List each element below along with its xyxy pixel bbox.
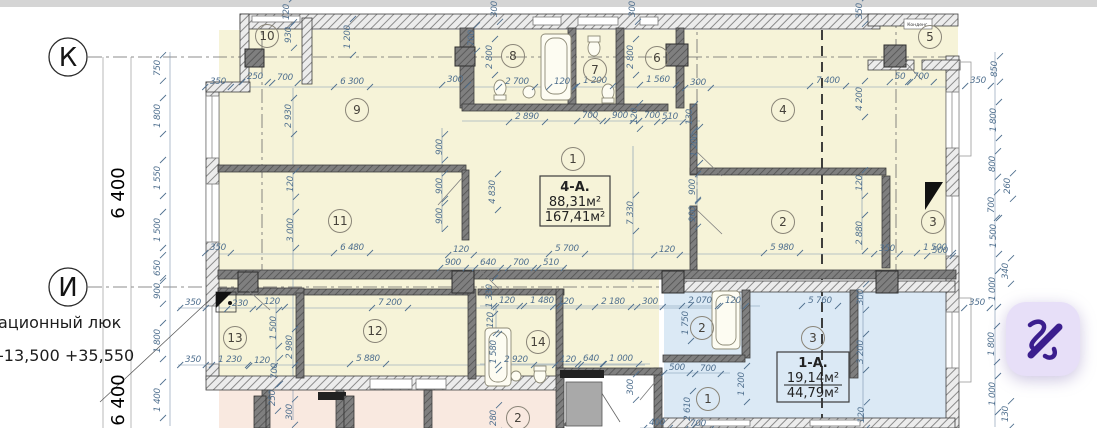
axis-span-dimension: 6 400 xyxy=(108,374,129,426)
dimension-label: 2 880 xyxy=(855,220,865,244)
dimension-label: 350 xyxy=(185,355,202,365)
dimension-label: 120 xyxy=(857,406,867,423)
dimension-label: 700 xyxy=(913,72,930,82)
svg-text:88,31м²: 88,31м² xyxy=(549,195,601,210)
dimension-label: 130 xyxy=(685,108,695,125)
dimension-label: 750 xyxy=(153,59,163,76)
dimension-label: 700 xyxy=(987,196,997,213)
svg-text:167,41м²: 167,41м² xyxy=(545,210,606,225)
annotate-button[interactable] xyxy=(1006,302,1080,376)
door-leaf xyxy=(560,370,604,378)
dimension-label: 2 890 xyxy=(515,112,539,122)
dimension-label: 2 920 xyxy=(504,355,528,365)
axis-bubble-K: К xyxy=(49,38,87,76)
dimension-label: 640 xyxy=(583,354,600,364)
dimension-label: 700 xyxy=(277,73,294,83)
dimension-label: 1 500 xyxy=(989,223,999,247)
dimension-label: 120 xyxy=(282,3,292,20)
dimension-label: 6 480 xyxy=(340,243,364,253)
dimension-label: 2 800 xyxy=(626,44,636,68)
dimension-label: 2 980 xyxy=(285,334,295,358)
dimension-label: 1 800 xyxy=(989,107,999,131)
dimension-label: 1 560 xyxy=(646,75,670,85)
dimension-label: 340 xyxy=(1001,262,1011,279)
condensate-unit-label: Конденс. xyxy=(904,19,932,29)
dimension-label: 280 xyxy=(489,409,499,426)
door-leaf xyxy=(318,392,346,400)
elevation-note: -13,500 +35,550 xyxy=(0,346,134,365)
dimension-label: 350 xyxy=(969,298,986,308)
dimension-label: 900 xyxy=(445,258,462,268)
dimension-label: 2 700 xyxy=(505,77,529,87)
room-number: 4 xyxy=(779,103,787,117)
sink xyxy=(523,86,535,98)
dimension-label: 640 xyxy=(480,258,497,268)
dimension-label: 300 xyxy=(628,0,638,17)
axis-label-K: К xyxy=(59,43,77,73)
dimension-label: 1 200 xyxy=(737,371,747,395)
dimension-label: 900 xyxy=(688,205,698,222)
dimension-label: 700 xyxy=(700,364,717,374)
room-number: 14 xyxy=(530,335,545,349)
dimension-label: 850 xyxy=(990,60,1000,77)
room-number: 10 xyxy=(259,29,274,43)
dimension-label: 5 700 xyxy=(555,244,579,254)
dimension-label: 120 xyxy=(286,175,296,192)
dimension-label: 300 xyxy=(447,75,464,85)
dimension-label: 130 xyxy=(1001,405,1011,422)
dimension-label: 300 xyxy=(626,378,636,395)
dimension-label: 250 xyxy=(247,72,264,82)
top-edge-strip xyxy=(0,0,1097,7)
dimension-label: 650 xyxy=(153,259,163,276)
dimension-label: 1 330 xyxy=(485,283,495,307)
room-number: 13 xyxy=(227,331,242,345)
axis-label-I: И xyxy=(58,273,77,303)
dimension-label: 1 750 xyxy=(681,310,691,334)
dimension-label: 6 300 xyxy=(340,77,364,87)
dimension-label: 3 200 xyxy=(856,339,866,363)
dimension-label: 120 xyxy=(453,245,470,255)
dimension-label: 120 xyxy=(855,174,865,191)
room-number: 9 xyxy=(353,103,361,117)
dimension-label: 350 xyxy=(855,2,865,19)
dimension-label: 250 xyxy=(268,389,278,406)
dimension-label: 350 xyxy=(879,244,896,254)
floor-plan-screenshot: Конденс. К И 6 400 6 400 ационный люк -1… xyxy=(0,0,1097,428)
dimension-label: 350 xyxy=(185,298,202,308)
dimension-label: 1 000 xyxy=(988,381,998,405)
dimension-label: 3 000 xyxy=(286,217,296,241)
svg-text:19,14м²: 19,14м² xyxy=(787,371,839,386)
room-number: 2 xyxy=(779,215,787,229)
dimension-label: 700 xyxy=(690,419,707,428)
dimension-label: 300 xyxy=(490,0,500,17)
dimension-label: 2 930 xyxy=(284,103,294,127)
dimension-label: 1 800 xyxy=(153,103,163,127)
dimension-label: 1 500 xyxy=(153,217,163,241)
dimension-label: 5 980 xyxy=(770,243,794,253)
room-number: 1 xyxy=(569,152,577,166)
floor-plan-canvas: Конденс. К И 6 400 6 400 ационный люк -1… xyxy=(0,0,1097,428)
room-number: 12 xyxy=(367,324,382,338)
dimension-label: 230 xyxy=(232,299,249,309)
dimension-label: 1 400 xyxy=(153,387,163,411)
dimension-label: 700 xyxy=(467,29,477,46)
dimension-label: 300 xyxy=(856,288,866,305)
dimension-label: 120 xyxy=(558,297,575,307)
elevator-shaft xyxy=(566,382,602,426)
balcony-slab xyxy=(959,298,971,382)
dimension-label: 700 xyxy=(644,111,661,121)
dimension-label: 900 xyxy=(612,111,629,121)
svg-text:Конденс.: Конденс. xyxy=(907,22,929,28)
dimension-label: 300 xyxy=(642,297,659,307)
dimension-label: 700 xyxy=(582,111,599,121)
dimension-label: 1 200 xyxy=(690,132,700,156)
dimension-label: 7 400 xyxy=(816,76,840,86)
sink xyxy=(511,371,521,381)
svg-text:1-А.: 1-А. xyxy=(798,356,827,371)
dimension-label: 900 xyxy=(435,138,445,155)
room-number: 2 xyxy=(698,321,706,335)
dimension-label: 120 xyxy=(499,296,516,306)
dimension-label: 1 800 xyxy=(987,331,997,355)
dimension-label: 700 xyxy=(270,362,280,379)
room-number: 1 xyxy=(704,392,712,406)
room-number: 8 xyxy=(509,49,517,63)
room-number: 5 xyxy=(926,30,934,44)
dimension-label: 260 xyxy=(1003,177,1013,194)
hatch-note: ационный люк xyxy=(0,313,122,332)
dimension-label: 500 xyxy=(669,363,686,373)
dimension-label: 120 xyxy=(725,296,742,306)
dimension-label: 900 xyxy=(153,282,163,299)
room-number: 7 xyxy=(591,63,599,77)
dimension-label: 1 580 xyxy=(489,339,499,363)
room-number: 6 xyxy=(653,51,661,65)
dimension-label: 300 xyxy=(690,78,707,88)
dimension-label: 350 xyxy=(970,76,987,86)
dimension-label: 1 000 xyxy=(988,276,998,300)
dimension-label: 120 xyxy=(560,355,577,365)
dimension-label: 1 480 xyxy=(530,296,554,306)
dimension-label: 2 800 xyxy=(485,44,495,68)
axis-span-dimension: 6 400 xyxy=(108,167,129,219)
dimension-label: 510 xyxy=(543,258,560,268)
dimension-label: 900 xyxy=(435,177,445,194)
room-number: 11 xyxy=(332,214,347,228)
dimension-label: 7 200 xyxy=(378,298,402,308)
dimension-label: 120 xyxy=(264,297,281,307)
room-number: 3 xyxy=(929,215,937,229)
dimension-label: 510 xyxy=(662,112,679,122)
counter xyxy=(370,379,412,389)
dimension-label: 50 xyxy=(895,72,906,82)
dimension-label: 120 xyxy=(254,356,271,366)
svg-text:44,79м²: 44,79м² xyxy=(787,386,839,401)
dimension-label: 400 xyxy=(649,418,666,428)
svg-text:4-А.: 4-А. xyxy=(560,180,589,195)
dimension-label: 5 880 xyxy=(356,354,380,364)
dimension-label: 5 760 xyxy=(808,296,832,306)
dimension-label: 700 xyxy=(513,258,530,268)
dimension-label: 800 xyxy=(988,155,998,172)
dimension-label: 4 830 xyxy=(488,179,498,203)
dimension-label: 1 200 xyxy=(343,24,353,48)
dimension-label: 900 xyxy=(688,178,698,195)
dimension-label: 1 230 xyxy=(218,355,242,365)
dimension-label: 900 xyxy=(435,207,445,224)
dimension-label: 1 500 xyxy=(269,315,279,339)
dimension-label: 300 xyxy=(285,403,295,420)
axis-bubble-I: И xyxy=(49,268,87,306)
room-number: 2 xyxy=(514,411,522,425)
dimension-label: 1 000 xyxy=(609,354,633,364)
dimension-label: 4 200 xyxy=(855,86,865,110)
dimension-label: 120 xyxy=(659,245,676,255)
dimension-label: 350 xyxy=(210,243,227,253)
counter xyxy=(416,379,446,389)
dimension-label: 1 500 xyxy=(923,243,947,253)
dimension-label: 930 xyxy=(284,26,294,43)
dimension-label: 120 xyxy=(486,311,496,328)
dimension-label: 1 800 xyxy=(153,328,163,352)
dimension-label: 350 xyxy=(210,77,227,87)
dimension-label: 7 330 xyxy=(626,200,636,224)
dimension-label: 120 xyxy=(554,77,571,87)
dimension-label: 2 180 xyxy=(601,297,625,307)
dimension-label: 2 610 xyxy=(683,396,693,420)
room-number: 3 xyxy=(809,331,817,345)
dimension-label: 1 550 xyxy=(153,165,163,189)
